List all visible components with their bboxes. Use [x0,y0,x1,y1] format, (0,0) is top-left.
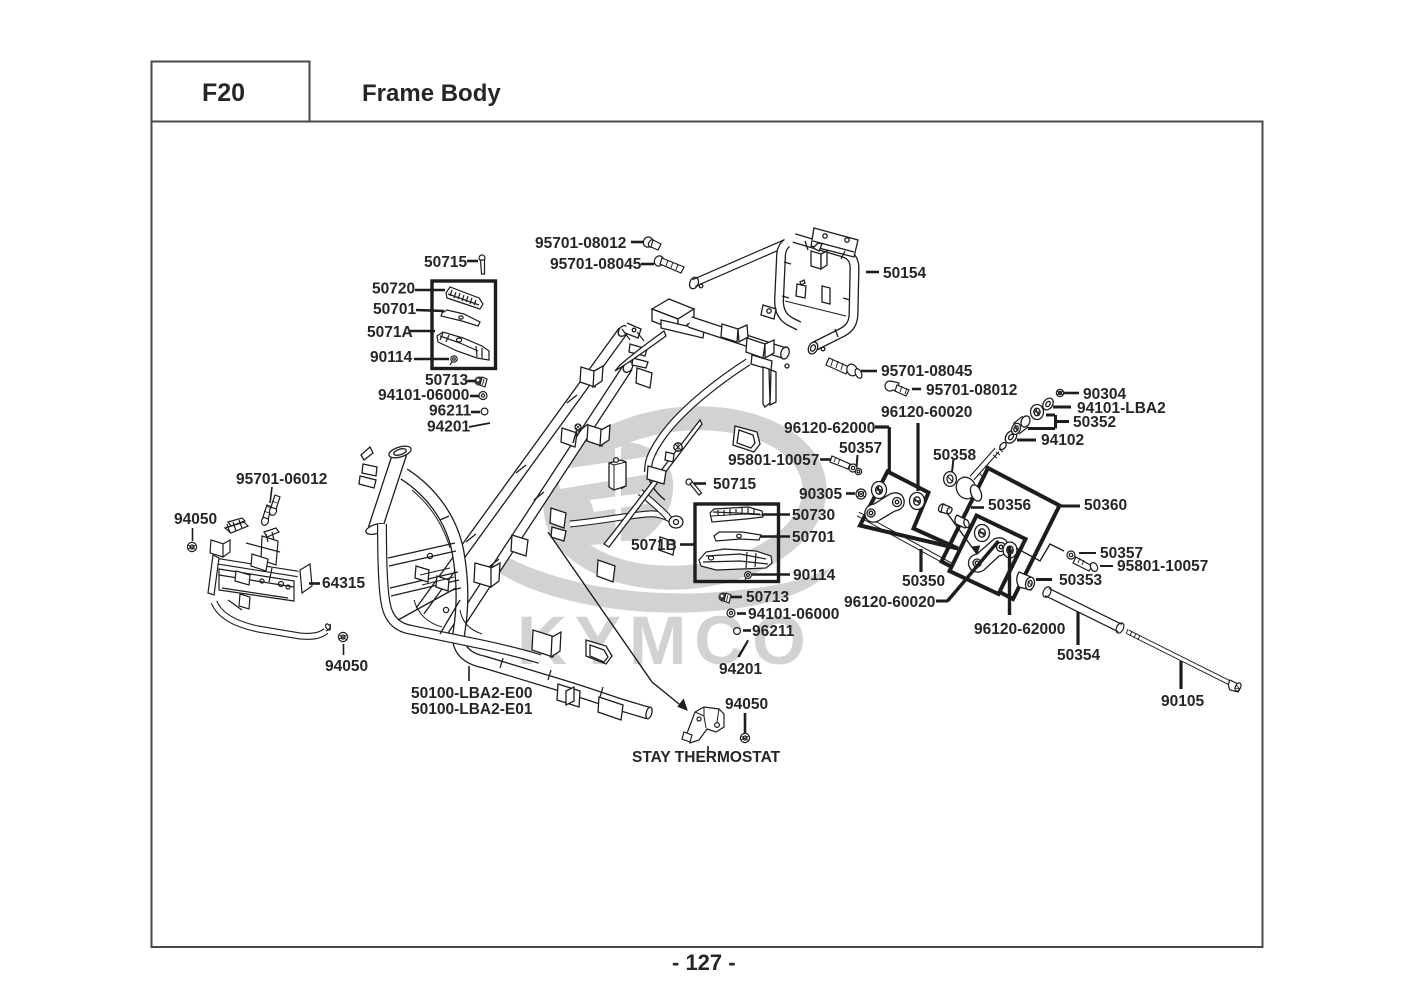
svg-text:50358: 50358 [933,447,976,464]
svg-text:50713: 50713 [746,589,789,606]
svg-text:50100-LBA2-E01: 50100-LBA2-E01 [411,701,533,718]
svg-text:95801-10057: 95801-10057 [728,452,819,469]
svg-text:- 127 -: - 127 - [672,950,736,975]
svg-text:96120-60020: 96120-60020 [844,594,935,611]
svg-text:96120-62000: 96120-62000 [974,621,1065,638]
svg-text:90114: 90114 [793,567,836,584]
svg-text:50154: 50154 [883,265,926,282]
svg-text:95701-08045: 95701-08045 [550,256,642,273]
svg-text:94101-06000: 94101-06000 [378,387,469,404]
svg-text:50356: 50356 [988,497,1031,514]
svg-text:5071B: 5071B [631,537,677,554]
svg-text:50352: 50352 [1073,414,1116,431]
svg-text:50701: 50701 [373,301,416,318]
svg-text:50715: 50715 [713,476,756,493]
svg-text:50100-LBA2-E00: 50100-LBA2-E00 [411,685,532,702]
svg-text:F20: F20 [202,79,245,107]
svg-text:50701: 50701 [792,529,835,546]
svg-text:STAY THERMOSTAT: STAY THERMOSTAT [632,749,781,766]
svg-text:50354: 50354 [1057,647,1100,664]
svg-text:50350: 50350 [902,573,945,590]
svg-text:94050: 94050 [325,658,368,675]
svg-text:95701-06012: 95701-06012 [236,471,327,488]
svg-text:94050: 94050 [725,696,768,713]
svg-text:95801-10057: 95801-10057 [1117,558,1208,575]
svg-text:50360: 50360 [1084,497,1127,514]
svg-text:94101-06000: 94101-06000 [748,606,839,623]
svg-text:95701-08012: 95701-08012 [926,382,1017,399]
svg-text:50357: 50357 [839,440,882,457]
svg-text:95701-08012: 95701-08012 [535,235,626,252]
svg-text:94201: 94201 [719,661,762,678]
svg-text:95701-08045: 95701-08045 [881,363,973,380]
svg-text:90114: 90114 [370,349,413,366]
svg-text:64315: 64315 [322,575,365,592]
svg-text:96120-62000: 96120-62000 [784,420,875,437]
svg-text:50730: 50730 [792,507,835,524]
svg-text:96211: 96211 [752,623,795,640]
svg-text:96120-60020: 96120-60020 [881,404,972,421]
svg-text:94102: 94102 [1041,432,1084,449]
svg-text:96211: 96211 [429,403,472,420]
svg-text:94050: 94050 [174,511,217,528]
svg-text:50353: 50353 [1059,572,1102,589]
svg-text:50715: 50715 [424,254,467,271]
svg-text:Frame Body: Frame Body [362,80,501,107]
svg-text:94201: 94201 [427,419,470,436]
svg-text:5071A: 5071A [367,324,413,341]
svg-text:90305: 90305 [799,486,842,503]
svg-text:90105: 90105 [1161,693,1204,710]
svg-text:50720: 50720 [372,281,415,298]
